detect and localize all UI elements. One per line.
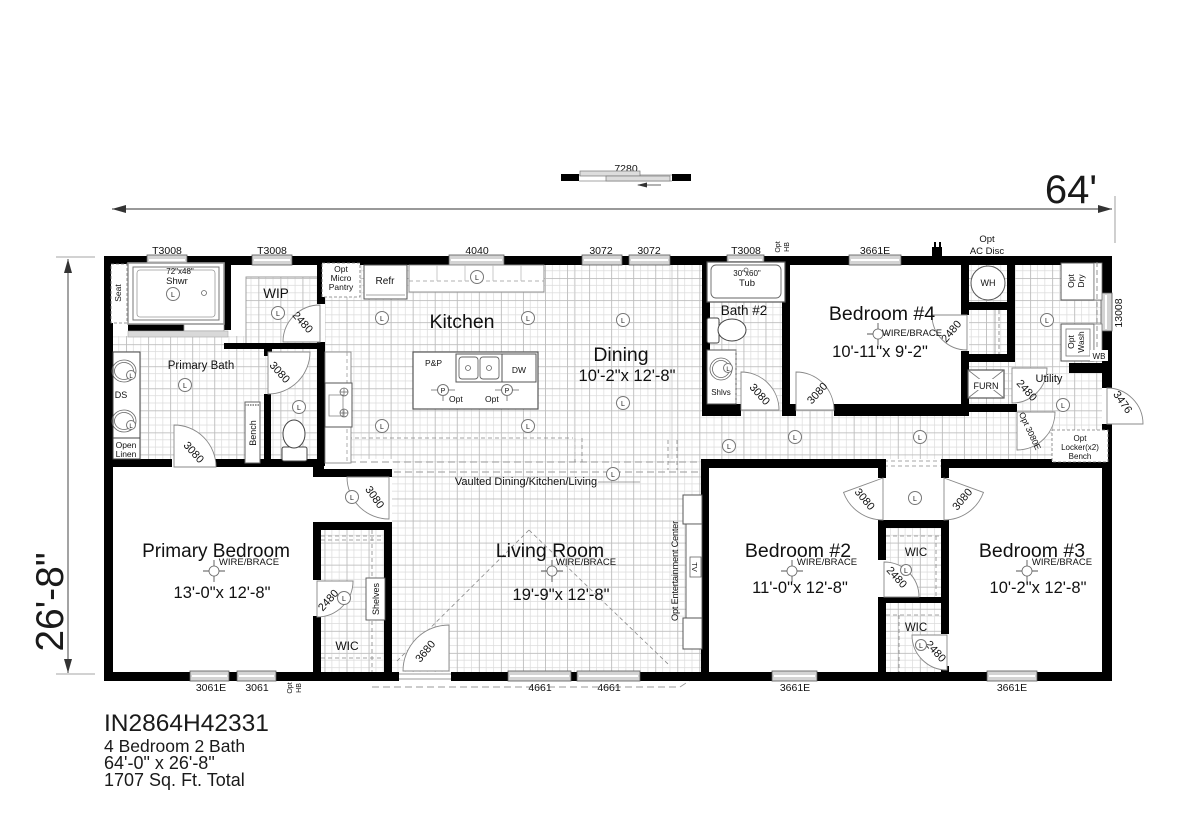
svg-text:13008: 13008: [1113, 298, 1125, 327]
svg-text:Shlvs: Shlvs: [711, 388, 731, 397]
svg-text:Wash: Wash: [1076, 331, 1086, 353]
svg-text:L: L: [342, 596, 346, 603]
svg-text:T3008: T3008: [257, 245, 287, 257]
svg-text:Shwr: Shwr: [166, 276, 188, 287]
svg-text:P&P: P&P: [425, 358, 442, 368]
svg-text:WIRE/BRACE: WIRE/BRACE: [797, 557, 857, 568]
svg-text:19'-9"x 12'-8": 19'-9"x 12'-8": [513, 586, 610, 604]
svg-text:Vaulted Dining/Kitchen/Living: Vaulted Dining/Kitchen/Living: [455, 476, 597, 488]
svg-text:26'-8": 26'-8": [29, 552, 72, 651]
svg-text:HB: HB: [296, 683, 303, 693]
svg-text:Bench: Bench: [248, 420, 258, 446]
svg-text:T3008: T3008: [731, 245, 761, 257]
svg-text:3061E: 3061E: [196, 682, 226, 694]
svg-text:DS: DS: [115, 390, 128, 400]
svg-text:L: L: [1061, 403, 1065, 410]
svg-text:L: L: [919, 643, 923, 650]
svg-text:Bench: Bench: [1069, 452, 1092, 461]
svg-text:10'-2"x 12'-8": 10'-2"x 12'-8": [990, 579, 1087, 597]
svg-text:Shelves: Shelves: [371, 582, 381, 615]
svg-text:L: L: [727, 444, 731, 451]
svg-text:Opt: Opt: [1066, 335, 1076, 349]
svg-text:Refr: Refr: [376, 276, 396, 287]
svg-text:Opt: Opt: [485, 394, 499, 404]
svg-text:WIC: WIC: [905, 622, 927, 634]
svg-text:DW: DW: [512, 365, 526, 375]
svg-text:WIC: WIC: [905, 547, 927, 559]
svg-text:L: L: [171, 292, 175, 299]
svg-text:L: L: [904, 568, 908, 575]
svg-text:L: L: [918, 435, 922, 442]
svg-text:10'-11"x 9'-2": 10'-11"x 9'-2": [832, 343, 928, 361]
svg-text:L: L: [793, 435, 797, 442]
svg-text:64': 64': [1045, 168, 1097, 212]
svg-text:L: L: [611, 472, 615, 479]
svg-text:Opt: Opt: [287, 682, 294, 693]
svg-text:Bath #2: Bath #2: [721, 303, 768, 318]
svg-text:P: P: [441, 388, 446, 395]
svg-text:T3008: T3008: [152, 245, 182, 257]
svg-text:Dry: Dry: [1076, 274, 1086, 288]
svg-text:WIRE/BRACE: WIRE/BRACE: [219, 557, 279, 568]
svg-text:L: L: [913, 496, 917, 503]
svg-text:L: L: [350, 495, 354, 502]
svg-text:L: L: [621, 401, 625, 408]
svg-text:Opt: Opt: [979, 234, 995, 245]
svg-text:L: L: [526, 316, 530, 323]
svg-text:HB: HB: [784, 242, 791, 252]
svg-text:Opt Entertainment Center: Opt Entertainment Center: [670, 521, 680, 621]
svg-text:IN2864H42331: IN2864H42331: [104, 710, 269, 737]
svg-text:4040: 4040: [465, 245, 489, 257]
svg-text:72"x48": 72"x48": [166, 267, 194, 276]
svg-text:10'-2"x 12'-8": 10'-2"x 12'-8": [579, 367, 676, 385]
svg-text:3661E: 3661E: [860, 245, 890, 257]
svg-text:13'-0"x 12'-8": 13'-0"x 12'-8": [174, 584, 271, 602]
svg-text:WIRE/BRACE: WIRE/BRACE: [882, 328, 942, 339]
svg-text:Pantry: Pantry: [329, 282, 354, 292]
svg-text:L: L: [297, 405, 301, 412]
svg-text:Linen: Linen: [116, 449, 137, 459]
svg-text:3661E: 3661E: [997, 682, 1027, 694]
svg-text:WIC: WIC: [335, 639, 359, 653]
svg-text:L: L: [380, 424, 384, 431]
svg-text:L: L: [380, 316, 384, 323]
svg-text:Opt: Opt: [1074, 434, 1088, 443]
svg-text:Kitchen: Kitchen: [429, 311, 494, 333]
svg-text:Opt: Opt: [1066, 274, 1076, 288]
svg-text:30"x60": 30"x60": [733, 269, 761, 278]
svg-text:11'-0"x 12'-8": 11'-0"x 12'-8": [752, 579, 848, 597]
svg-text:L: L: [276, 311, 280, 318]
svg-text:Bedroom #4: Bedroom #4: [829, 303, 935, 325]
svg-text:3072: 3072: [589, 245, 613, 257]
svg-text:L: L: [621, 318, 625, 325]
svg-text:3061: 3061: [245, 682, 269, 694]
svg-text:3072: 3072: [637, 245, 661, 257]
svg-text:4661: 4661: [528, 682, 552, 694]
svg-text:WIRE/BRACE: WIRE/BRACE: [556, 557, 616, 568]
svg-text:WB: WB: [1093, 352, 1106, 361]
svg-text:WH: WH: [981, 278, 996, 288]
svg-text:L: L: [183, 383, 187, 390]
svg-text:Utility: Utility: [1036, 373, 1063, 385]
svg-text:1707 Sq. Ft. Total: 1707 Sq. Ft. Total: [104, 770, 245, 790]
svg-text:Opt: Opt: [449, 394, 463, 404]
svg-text:WIP: WIP: [263, 286, 289, 301]
svg-text:FURN: FURN: [974, 381, 999, 391]
svg-text:L: L: [1045, 318, 1049, 325]
svg-text:Primary Bath: Primary Bath: [168, 360, 234, 372]
svg-text:Tub: Tub: [739, 278, 755, 289]
svg-text:4661: 4661: [597, 682, 621, 694]
svg-text:TV: TV: [690, 562, 699, 572]
svg-text:Seat: Seat: [113, 284, 123, 302]
svg-text:WIRE/BRACE: WIRE/BRACE: [1032, 557, 1092, 568]
svg-text:AC Disc: AC Disc: [970, 246, 1005, 257]
svg-text:3661E: 3661E: [780, 682, 810, 694]
svg-text:Locker(x2): Locker(x2): [1061, 443, 1099, 452]
svg-text:Opt: Opt: [775, 241, 782, 252]
svg-text:L: L: [526, 424, 530, 431]
svg-text:Dining: Dining: [593, 344, 648, 366]
svg-text:P: P: [505, 388, 510, 395]
svg-text:L: L: [475, 275, 479, 282]
